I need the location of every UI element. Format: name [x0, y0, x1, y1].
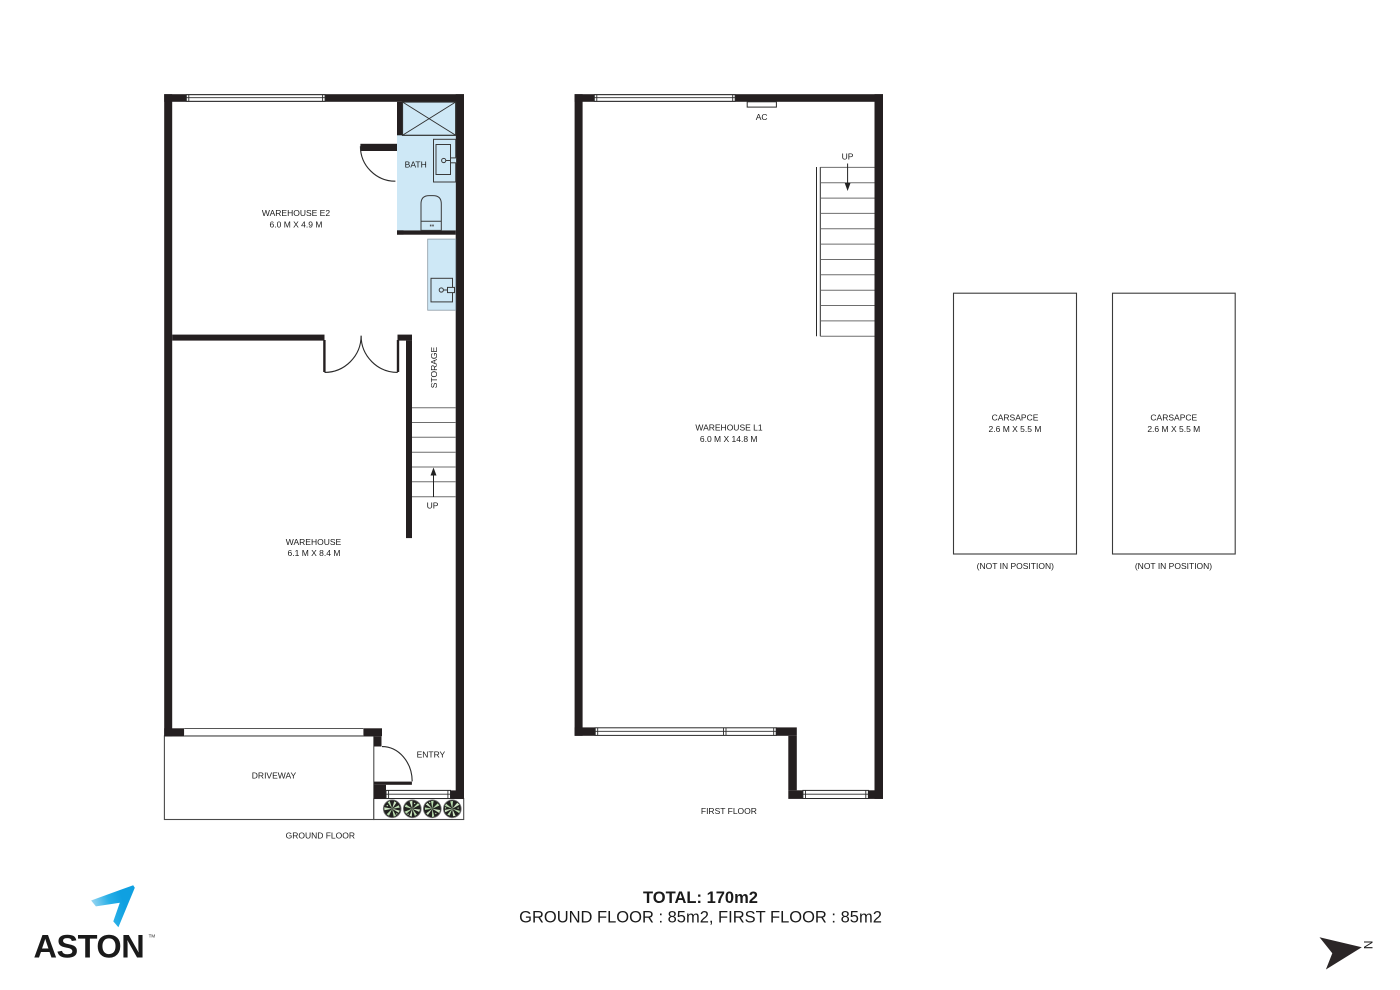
- svg-text:WAREHOUSE E2: WAREHOUSE E2: [262, 208, 330, 218]
- svg-text:2.6 M X 5.5 M: 2.6 M X 5.5 M: [989, 424, 1042, 434]
- svg-text:6.0 M X 14.8 M: 6.0 M X 14.8 M: [700, 434, 758, 444]
- svg-text:(NOT IN POSITION): (NOT IN POSITION): [1135, 561, 1212, 571]
- svg-text:WAREHOUSE: WAREHOUSE: [286, 537, 342, 547]
- svg-text:STORAGE: STORAGE: [429, 346, 439, 388]
- svg-text:6.0 M X 4.9 M: 6.0 M X 4.9 M: [270, 220, 323, 230]
- svg-text:6.1 M X 8.4 M: 6.1 M X 8.4 M: [288, 548, 341, 558]
- svg-text:CARSAPCE: CARSAPCE: [1150, 413, 1197, 423]
- svg-text:ENTRY: ENTRY: [417, 750, 446, 760]
- svg-text:TM: TM: [149, 934, 156, 939]
- svg-text:UP: UP: [842, 152, 854, 162]
- svg-text:CARSAPCE: CARSAPCE: [992, 413, 1039, 423]
- svg-text:GROUND FLOOR : 85m2, FIRST FLO: GROUND FLOOR : 85m2, FIRST FLOOR : 85m2: [519, 909, 882, 927]
- svg-text:ASTON: ASTON: [34, 928, 145, 964]
- svg-text:BATH: BATH: [405, 160, 427, 170]
- svg-text:TOTAL: 170m2: TOTAL: 170m2: [643, 889, 758, 907]
- svg-text:N: N: [1361, 941, 1375, 950]
- svg-text:2.6 M X 5.5 M: 2.6 M X 5.5 M: [1147, 424, 1200, 434]
- svg-text:FIRST FLOOR: FIRST FLOOR: [701, 806, 757, 816]
- svg-text:UP: UP: [427, 501, 439, 511]
- svg-text:WAREHOUSE L1: WAREHOUSE L1: [695, 423, 763, 433]
- svg-text:AC: AC: [756, 112, 768, 122]
- svg-text:DRIVEWAY: DRIVEWAY: [252, 770, 297, 780]
- svg-text:(NOT IN POSITION): (NOT IN POSITION): [977, 561, 1054, 571]
- svg-text:GROUND FLOOR: GROUND FLOOR: [286, 831, 355, 841]
